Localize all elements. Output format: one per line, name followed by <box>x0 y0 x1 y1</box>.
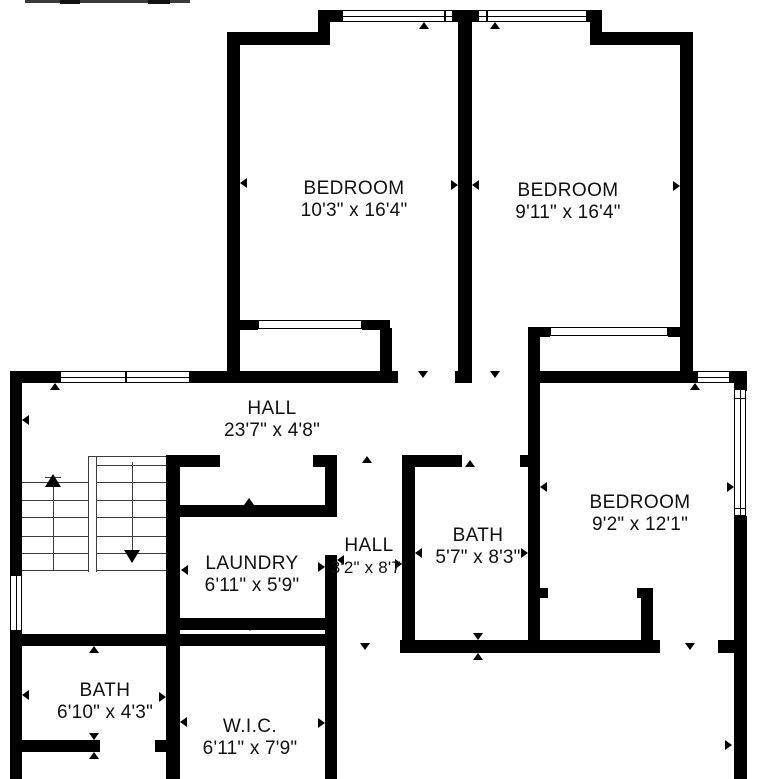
wall-midpoint-tick <box>362 456 372 463</box>
room-dimensions: 6'10" x 4'3" <box>57 702 153 724</box>
room-dimensions: 5'7" x 8'3" <box>435 547 520 569</box>
wall-midpoint-tick <box>473 653 483 660</box>
wall-segment <box>455 371 472 383</box>
room-label: BEDROOM9'2" x 12'1" <box>590 492 691 536</box>
wall-midpoint-tick <box>244 498 254 505</box>
room-name: BEDROOM <box>301 178 408 200</box>
room-label: HALL23'7" x 4'8" <box>224 398 320 442</box>
wall-midpoint-tick <box>673 181 680 191</box>
room-label: BATH6'10" x 4'3" <box>57 680 153 724</box>
wall-midpoint-tick <box>685 643 695 650</box>
room-dimensions: 6'11" x 7'9" <box>203 738 298 760</box>
stair-tread-line <box>96 482 166 483</box>
window-sash-divider <box>444 11 446 21</box>
wall-segment <box>227 32 240 383</box>
room-name: W.I.C. <box>203 716 298 738</box>
room-label: LAUNDRY6'11" x 5'9" <box>205 553 300 597</box>
wall-segment <box>166 505 337 517</box>
room-name: BEDROOM <box>590 492 691 514</box>
wall-segment <box>402 455 462 467</box>
window <box>697 371 730 383</box>
window-sash-divider <box>735 508 745 510</box>
wall-midpoint-tick <box>727 482 734 492</box>
wall-midpoint-tick <box>245 637 255 644</box>
window <box>10 575 22 631</box>
wall-midpoint-tick <box>22 690 29 700</box>
room-name: HALL <box>224 398 320 420</box>
wall-midpoint-tick <box>245 624 255 631</box>
wall-midpoint-tick <box>181 565 188 575</box>
wall-segment <box>155 740 180 752</box>
wall-midpoint-tick <box>360 643 370 650</box>
wall-segment <box>668 327 685 337</box>
wall-segment <box>528 327 550 337</box>
wall-midpoint-tick <box>50 383 60 390</box>
wall-segment <box>637 588 653 598</box>
room-name: BATH <box>435 525 520 547</box>
stair-tread-line <box>88 456 89 572</box>
wall-midpoint-tick <box>540 482 547 492</box>
wall-segment <box>730 371 747 383</box>
wall-segment <box>190 371 398 383</box>
stair-tread-line <box>96 500 166 501</box>
stair-tread-line <box>22 536 88 537</box>
stair-tread-line <box>96 465 166 466</box>
window-glass-line <box>479 16 586 17</box>
room-label: HALL3'2" x 8'7" <box>331 535 408 579</box>
wall-segment <box>734 516 747 779</box>
top-edge-artifact <box>60 0 80 4</box>
wall-midpoint-tick <box>451 180 458 190</box>
wall-midpoint-tick <box>490 22 500 29</box>
stair-tread-line <box>96 517 166 518</box>
wall-segment <box>325 555 337 779</box>
wall-segment <box>590 32 693 45</box>
wall-segment <box>535 588 548 598</box>
stair-tread-line <box>96 570 166 571</box>
window <box>342 10 453 22</box>
window-sash-divider <box>486 11 488 21</box>
wall-segment <box>238 320 258 330</box>
wall-midpoint-tick <box>89 752 99 759</box>
window-glass-line <box>740 390 741 515</box>
wall-midpoint-tick <box>419 22 429 29</box>
wall-segment <box>10 631 22 779</box>
wall-midpoint-tick <box>22 415 29 425</box>
wall-segment <box>528 371 697 383</box>
wall-segment <box>10 740 100 752</box>
room-dimensions: 6'11" x 5'9" <box>205 575 300 597</box>
stair-direction-arrow <box>45 474 61 487</box>
wall-midpoint-tick <box>418 371 428 378</box>
sliding-closet-door <box>550 327 668 336</box>
wall-segment <box>400 640 660 653</box>
room-label: W.I.C.6'11" x 7'9" <box>203 716 298 760</box>
stair-tread-line <box>22 517 88 518</box>
wall-midpoint-tick <box>521 548 528 558</box>
wall-midpoint-tick <box>318 718 325 728</box>
stair-tread-line <box>88 456 166 457</box>
room-dimensions: 3'2" x 8'7" <box>331 557 408 579</box>
window <box>734 389 746 516</box>
wall-midpoint-tick <box>490 371 500 378</box>
wall-midpoint-tick <box>240 178 247 188</box>
wall-midpoint-tick <box>415 548 422 558</box>
stair-tread-line <box>22 570 88 571</box>
wall-segment <box>227 32 330 45</box>
room-name: LAUNDRY <box>205 553 300 575</box>
window-glass-line <box>343 16 452 17</box>
sliding-closet-door <box>258 320 362 329</box>
top-edge-artifact <box>148 0 170 4</box>
room-label: BEDROOM10'3" x 16'4" <box>301 178 408 222</box>
room-dimensions: 23'7" x 4'8" <box>224 420 320 442</box>
wall-segment <box>166 455 180 779</box>
stair-tread-line <box>96 456 97 572</box>
window-glass-line <box>16 576 17 630</box>
room-name: BATH <box>57 680 153 702</box>
room-name: BEDROOM <box>515 180 620 202</box>
room-label: BEDROOM9'11" x 16'4" <box>515 180 620 224</box>
wall-midpoint-tick <box>180 717 187 727</box>
wall-segment <box>528 383 540 653</box>
wall-segment <box>380 328 392 373</box>
wall-midpoint-tick <box>725 740 732 750</box>
window-sash-divider <box>125 372 127 382</box>
wall-midpoint-tick <box>473 633 483 640</box>
wall-midpoint-tick <box>690 383 700 390</box>
room-name: HALL <box>331 535 408 557</box>
window <box>478 10 587 22</box>
wall-midpoint-tick <box>465 460 475 467</box>
wall-segment <box>10 371 22 575</box>
stair-tread-line <box>22 553 88 554</box>
window <box>60 371 190 383</box>
room-dimensions: 9'11" x 16'4" <box>515 202 620 224</box>
wall-midpoint-tick <box>318 562 325 572</box>
window-glass-line <box>698 377 729 378</box>
room-dimensions: 9'2" x 12'1" <box>590 514 691 536</box>
stair-direction-arrow <box>124 550 140 563</box>
wall-midpoint-tick <box>159 692 166 702</box>
wall-midpoint-tick <box>89 646 99 653</box>
wall-segment <box>10 634 337 646</box>
room-label: BATH5'7" x 8'3" <box>435 525 520 569</box>
room-dimensions: 10'3" x 16'4" <box>301 200 408 222</box>
wall-segment <box>166 455 220 467</box>
wall-midpoint-tick <box>472 180 479 190</box>
stair-tread-line <box>132 462 133 562</box>
wall-segment <box>458 10 472 383</box>
floor-plan: BEDROOM10'3" x 16'4"BEDROOM9'11" x 16'4"… <box>0 0 779 779</box>
wall-segment <box>528 337 540 373</box>
stair-tread-line <box>96 536 166 537</box>
wall-midpoint-tick <box>89 733 99 740</box>
stair-tread-line <box>22 500 88 501</box>
window-sash-divider <box>735 398 745 400</box>
stair-tread-line <box>53 486 54 570</box>
